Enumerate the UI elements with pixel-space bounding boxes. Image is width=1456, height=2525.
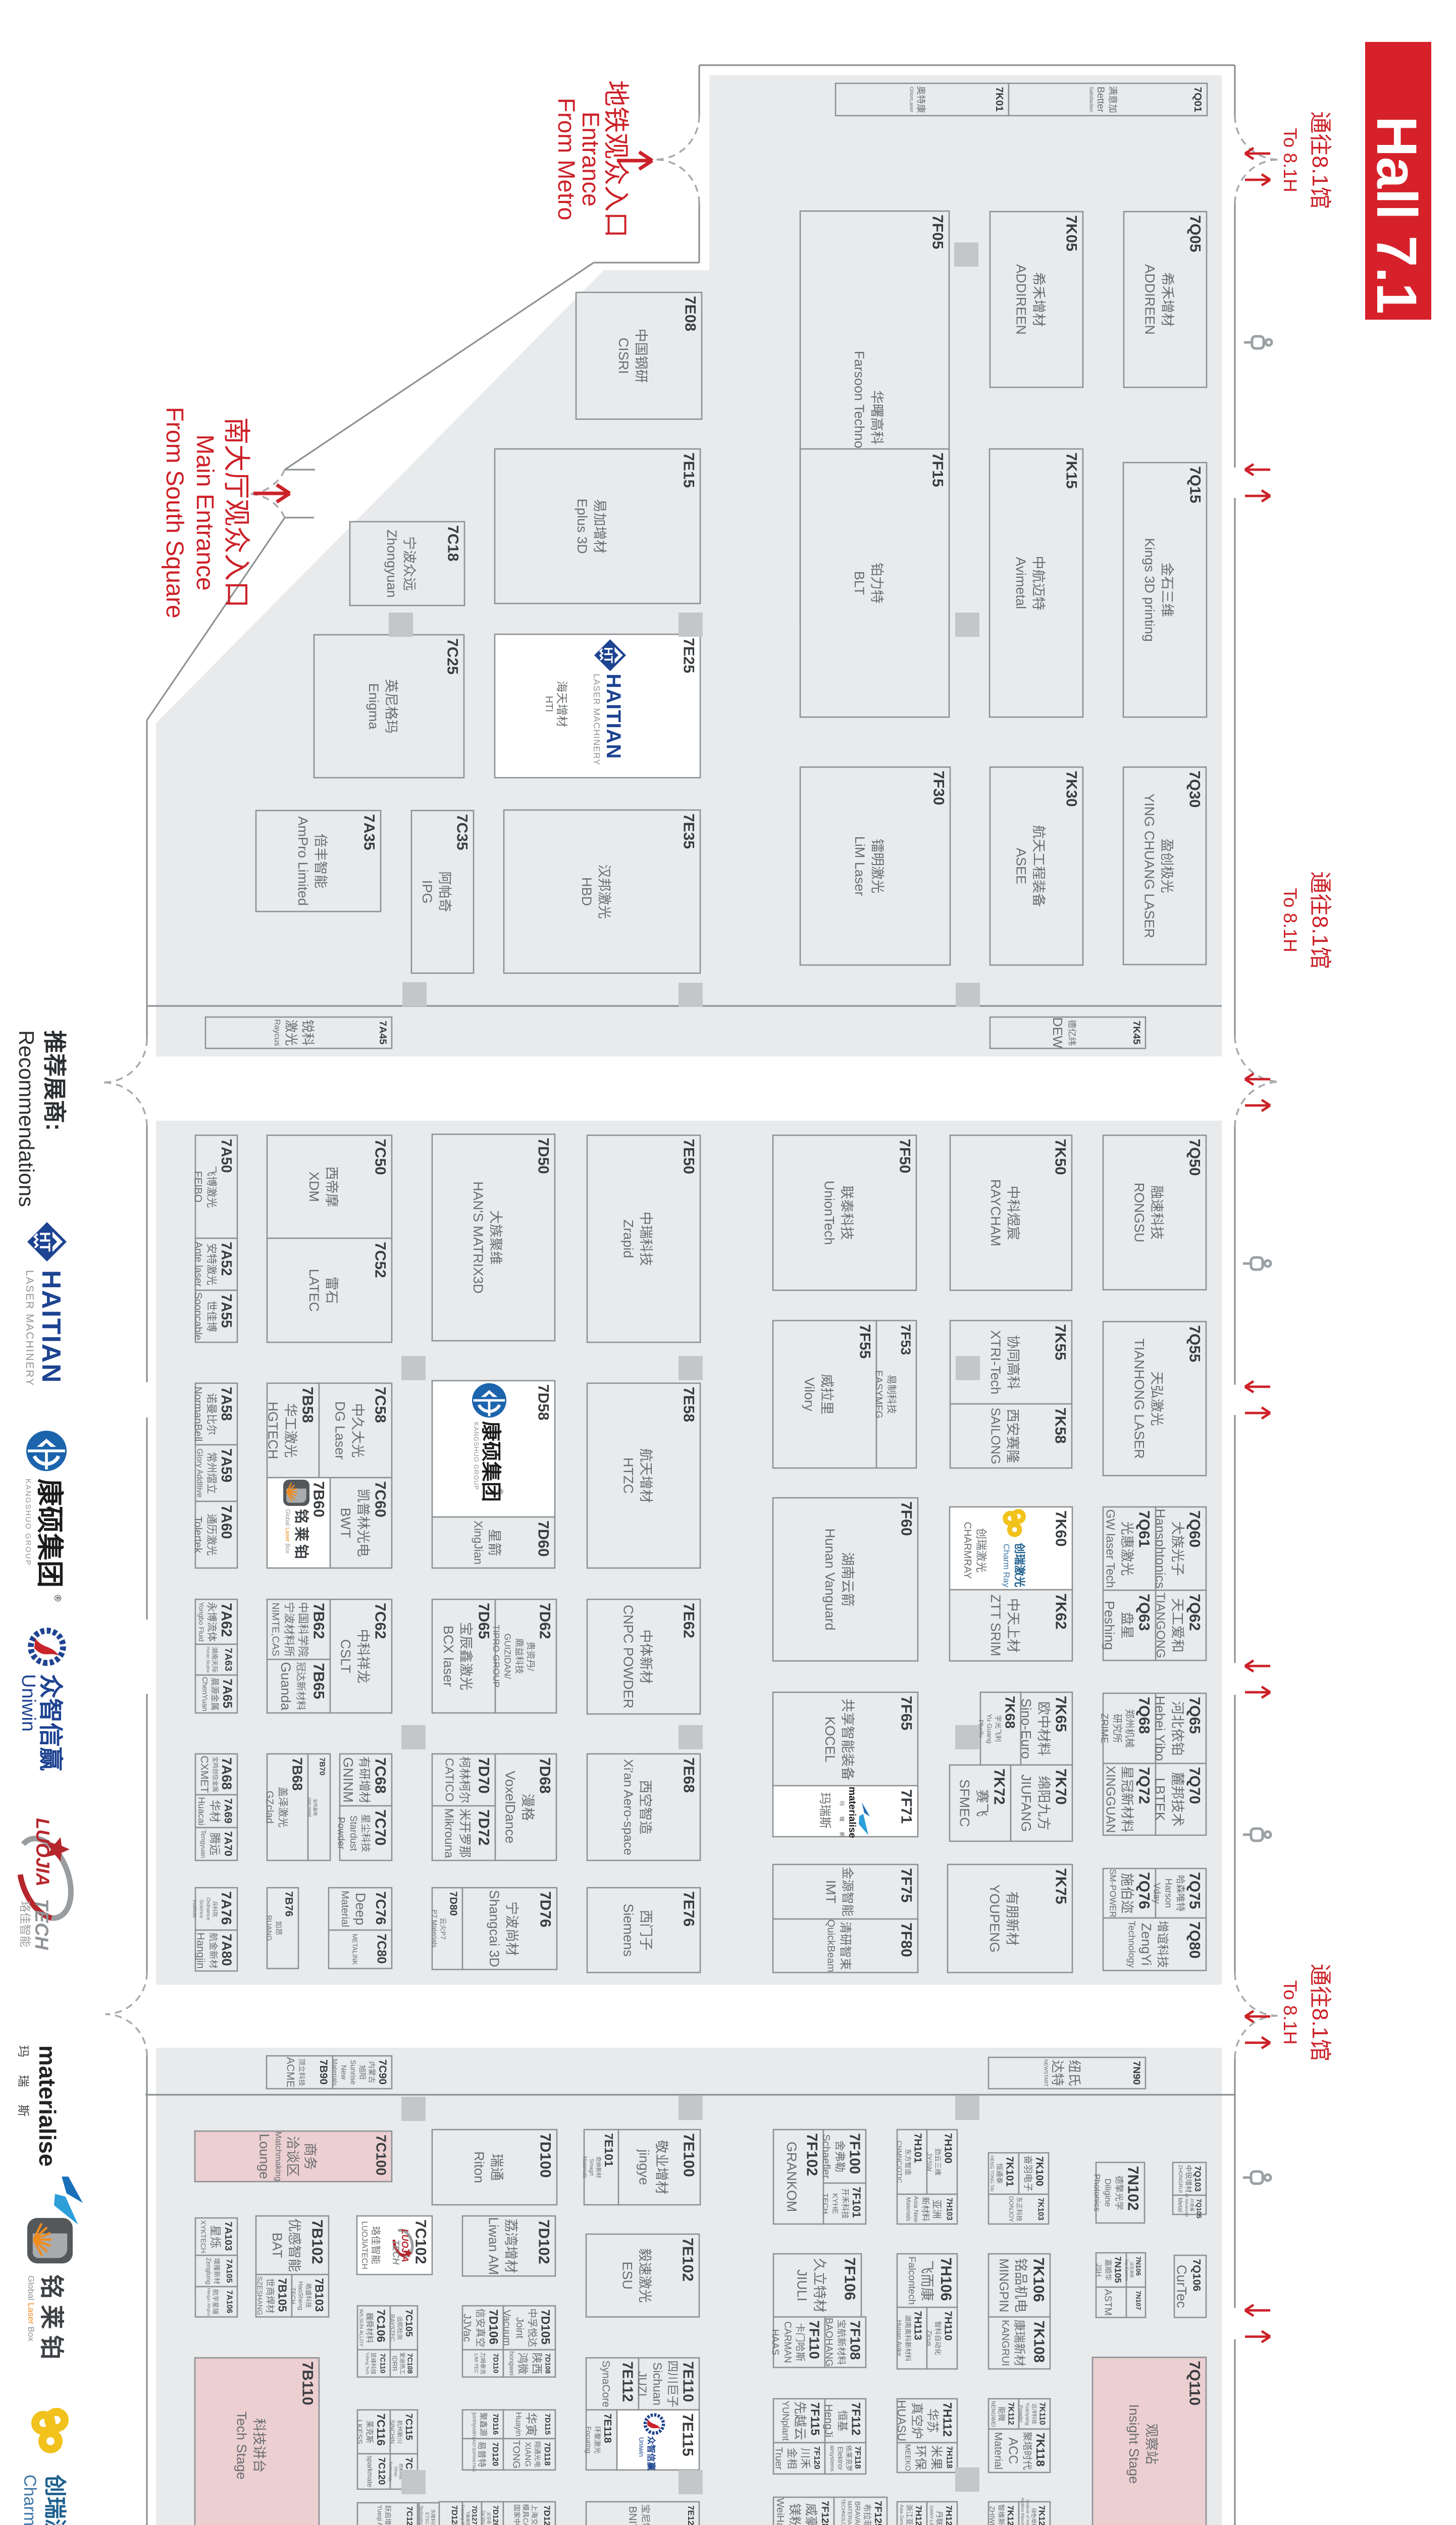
svg-text:Additive Manufacturing: Additive Manufacturing bbox=[1020, 2498, 1025, 2525]
svg-text:Institute of Intelligent: Institute of Intelligent bbox=[1025, 2500, 1030, 2525]
svg-text:易普特: 易普特 bbox=[477, 2441, 487, 2467]
svg-text:7D62: 7D62 bbox=[536, 1603, 553, 1639]
svg-text:OrionLaser: OrionLaser bbox=[909, 87, 914, 113]
svg-text:To 8.1H: To 8.1H bbox=[1280, 1980, 1301, 2045]
svg-text:Eplus 3D: Eplus 3D bbox=[575, 498, 590, 554]
svg-text:爱迪热工: 爱迪热工 bbox=[399, 2352, 405, 2375]
svg-text:Yuanyang: Yuanyang bbox=[1024, 2402, 1030, 2426]
svg-text:Hunan Aoke: Hunan Aoke bbox=[896, 2320, 903, 2356]
svg-text:Science: Science bbox=[198, 1899, 204, 1918]
svg-text:Siemens: Siemens bbox=[620, 1903, 636, 1956]
svg-text:JIULI: JIULI bbox=[794, 2269, 809, 2301]
svg-text:®: ® bbox=[496, 1489, 504, 1494]
svg-text:星冠新材料: 星冠新材料 bbox=[1120, 1766, 1135, 1833]
svg-text:湖南天际: 湖南天际 bbox=[211, 1647, 219, 1673]
svg-text:西空智造: 西空智造 bbox=[638, 1780, 653, 1835]
svg-text:JIUFANG: JIUFANG bbox=[1018, 1774, 1033, 1832]
svg-text:亚洲: 亚洲 bbox=[931, 2199, 942, 2218]
svg-text:7B102: 7B102 bbox=[308, 2219, 325, 2264]
svg-text:KANGSHUO GROUP: KANGSHUO GROUP bbox=[473, 1422, 480, 1490]
svg-text:Photonics: Photonics bbox=[1092, 2174, 1102, 2212]
svg-text:7H126: 7H126 bbox=[914, 2505, 923, 2525]
svg-text:HAITIAN: HAITIAN bbox=[602, 674, 625, 759]
svg-text:JX金属: JX金属 bbox=[1190, 2198, 1195, 2212]
svg-text:7D120: 7D120 bbox=[491, 2442, 500, 2466]
svg-text:7A69: 7A69 bbox=[222, 1798, 234, 1824]
svg-text:HGTECH: HGTECH bbox=[265, 1402, 280, 1459]
svg-text:hongwei: hongwei bbox=[508, 2351, 515, 2376]
svg-text:7A103: 7A103 bbox=[223, 2221, 234, 2251]
svg-text:7C58: 7C58 bbox=[372, 1387, 388, 1423]
svg-text:YING CHUANG LASER: YING CHUANG LASER bbox=[1141, 793, 1157, 938]
svg-text:皓盛科技: 皓盛科技 bbox=[305, 2284, 313, 2308]
svg-text:7F128: 7F128 bbox=[819, 2501, 830, 2525]
svg-text:Vacuum: Vacuum bbox=[501, 2310, 512, 2346]
svg-text:哈森唯特: 哈森唯特 bbox=[1175, 1875, 1185, 1912]
svg-text:ADDIREEN: ADDIREEN bbox=[1142, 264, 1157, 335]
svg-text:ASEE: ASEE bbox=[1013, 848, 1028, 884]
svg-text:7A63: 7A63 bbox=[223, 1648, 234, 1672]
svg-text:通历激光: 通历激光 bbox=[205, 1513, 217, 1555]
svg-text:舍弗勒: 舍弗勒 bbox=[834, 2140, 846, 2172]
svg-text:7D70: 7D70 bbox=[475, 1757, 492, 1794]
svg-text:荔湾增材: 荔湾增材 bbox=[503, 2219, 518, 2274]
svg-text:TIPRO GROUP: TIPRO GROUP bbox=[491, 1625, 501, 1687]
svg-text:Elektror: Elektror bbox=[837, 2447, 844, 2470]
svg-text:7D108: 7D108 bbox=[544, 2353, 552, 2374]
svg-text:Entrance: Entrance bbox=[578, 112, 604, 207]
svg-text:7K75: 7K75 bbox=[1052, 1868, 1069, 1904]
svg-text:Recommendations: Recommendations bbox=[15, 1030, 38, 1207]
svg-text:CHARMRAY: CHARMRAY bbox=[962, 1522, 973, 1579]
svg-text:XTRI-Tech: XTRI-Tech bbox=[988, 1330, 1003, 1395]
svg-text:7F53: 7F53 bbox=[898, 1324, 913, 1355]
svg-text:欧中材料: 欧中材料 bbox=[1036, 1701, 1051, 1756]
svg-text:7A105: 7A105 bbox=[225, 2259, 234, 2283]
svg-text:P7 Materials: P7 Materials bbox=[431, 1909, 438, 1947]
svg-text:Vday: Vday bbox=[1152, 1883, 1162, 1904]
svg-text:LUOJIATECH: LUOJIATECH bbox=[360, 2221, 369, 2269]
svg-text:腾远: 腾远 bbox=[209, 1833, 221, 1855]
svg-text:7C50: 7C50 bbox=[372, 1139, 388, 1175]
svg-text:聚鑫源: 聚鑫源 bbox=[479, 2412, 488, 2436]
svg-text:LKESS: LKESS bbox=[355, 2419, 364, 2444]
svg-text:珞佳智能: 珞佳智能 bbox=[370, 2226, 381, 2264]
svg-text:Huacai: Huacai bbox=[196, 1797, 206, 1825]
svg-text:KANGSHUO GROUP: KANGSHUO GROUP bbox=[24, 1479, 32, 1566]
svg-text:7H101: 7H101 bbox=[912, 2133, 923, 2163]
svg-text:漫格: 漫格 bbox=[520, 1794, 535, 1821]
svg-text:7B90: 7B90 bbox=[318, 2059, 329, 2085]
svg-text:ESU: ESU bbox=[619, 2261, 635, 2290]
svg-text:Sinagrt: Sinagrt bbox=[589, 2159, 595, 2176]
svg-text:7E50: 7E50 bbox=[680, 1139, 697, 1174]
svg-text:星尘科技: 星尘科技 bbox=[360, 1814, 371, 1852]
svg-text:7C108: 7C108 bbox=[406, 2353, 414, 2374]
svg-text:华工激光: 华工激光 bbox=[283, 1403, 298, 1458]
svg-text:7Q110: 7Q110 bbox=[1186, 2361, 1203, 2405]
svg-text:JUZI: JUZI bbox=[635, 2371, 648, 2396]
svg-text:旭阳: 旭阳 bbox=[358, 2065, 367, 2080]
svg-text:新材料: 新材料 bbox=[920, 2197, 929, 2221]
svg-text:7Q80: 7Q80 bbox=[1186, 1922, 1203, 1958]
svg-text:兵科院: 兵科院 bbox=[212, 1901, 219, 1917]
svg-text:易加增材: 易加增材 bbox=[592, 499, 607, 553]
svg-text:Technology: Technology bbox=[1127, 1921, 1137, 1968]
svg-text:To 8.1H: To 8.1H bbox=[1280, 128, 1301, 192]
svg-text:7Q55: 7Q55 bbox=[1186, 1325, 1203, 1362]
svg-text:Focuring: Focuring bbox=[585, 2427, 593, 2454]
svg-text:Shangcai 3D: Shangcai 3D bbox=[487, 1890, 502, 1967]
svg-text:JYSW: JYSW bbox=[925, 2152, 933, 2171]
svg-text:airsystems: airsystems bbox=[829, 2445, 835, 2472]
svg-text:7K106: 7K106 bbox=[1030, 2257, 1047, 2302]
svg-text:7E112: 7E112 bbox=[619, 2361, 636, 2402]
svg-text:Technology: Technology bbox=[388, 2461, 393, 2482]
svg-text:7C90: 7C90 bbox=[377, 2059, 388, 2085]
svg-text:NENGWEI: NENGWEI bbox=[990, 2401, 996, 2427]
svg-text:阿帕奇: 阿帕奇 bbox=[437, 872, 452, 913]
svg-text:玛瑞斯: 玛瑞斯 bbox=[818, 1792, 831, 1829]
svg-text:HAN'S MATRIX3D: HAN'S MATRIX3D bbox=[471, 1181, 486, 1293]
svg-text:创瑞激光: 创瑞激光 bbox=[975, 1528, 987, 1573]
svg-text:7Q63: 7Q63 bbox=[1135, 1594, 1152, 1631]
svg-text:开禾科技: 开禾科技 bbox=[841, 2188, 849, 2219]
svg-text:优感智能: 优感智能 bbox=[287, 2218, 302, 2272]
svg-text:7F30: 7F30 bbox=[930, 771, 947, 805]
svg-text:中锐增材: 中锐增材 bbox=[1184, 2165, 1192, 2193]
svg-text:宝尼特: 宝尼特 bbox=[641, 2504, 651, 2525]
svg-text:Main Entrance: Main Entrance bbox=[191, 434, 218, 591]
svg-text:7K58: 7K58 bbox=[1052, 1407, 1068, 1444]
svg-text:7A59: 7A59 bbox=[219, 1448, 235, 1482]
svg-text:国家中心: 国家中心 bbox=[513, 2504, 521, 2525]
svg-text:materialise: materialise bbox=[34, 2045, 61, 2166]
svg-text:冠达新材料: 冠达新材料 bbox=[295, 1662, 306, 1710]
svg-text:镁粉: 镁粉 bbox=[788, 2503, 802, 2525]
svg-text:AmPro Limited: AmPro Limited bbox=[295, 816, 310, 905]
svg-text:7B70: 7B70 bbox=[318, 1757, 327, 1776]
svg-text:众智信赢: 众智信赢 bbox=[646, 2436, 656, 2470]
svg-text:云火P7: 云火P7 bbox=[439, 1917, 447, 1940]
svg-text:德擎光学: 德擎光学 bbox=[1114, 2176, 1124, 2210]
svg-text:通往8.1馆: 通往8.1馆 bbox=[1308, 871, 1332, 969]
svg-text:7A50: 7A50 bbox=[219, 1139, 235, 1173]
svg-text:Feixiang Metal: Feixiang Metal bbox=[460, 2505, 465, 2525]
svg-text:7F118: 7F118 bbox=[853, 2446, 862, 2469]
svg-text:7D125: 7D125 bbox=[542, 2505, 552, 2525]
svg-text:7Q15: 7Q15 bbox=[1186, 466, 1203, 503]
svg-text:ZHONGRUI: ZHONGRUI bbox=[1177, 2165, 1183, 2193]
svg-text:JSH: JSH bbox=[1095, 2263, 1103, 2277]
svg-text:7E102: 7E102 bbox=[679, 2238, 696, 2282]
svg-text:Avimetal: Avimetal bbox=[1013, 557, 1028, 609]
svg-text:满意加: 满意加 bbox=[1108, 86, 1118, 113]
svg-text:Tech Stage: Tech Stage bbox=[234, 2411, 249, 2480]
svg-text:LASER MACHINERY: LASER MACHINERY bbox=[24, 1270, 35, 1386]
svg-text:HaoSheng: HaoSheng bbox=[297, 2281, 304, 2310]
svg-text:7K65: 7K65 bbox=[1052, 1696, 1069, 1732]
svg-text:中天上材: 中天上材 bbox=[1005, 1598, 1020, 1653]
svg-text:7K100: 7K100 bbox=[1034, 2156, 1045, 2186]
svg-text:RAYSTEC: RAYSTEC bbox=[389, 2314, 395, 2342]
svg-text:7E35: 7E35 bbox=[680, 814, 697, 849]
svg-text:融速科技: 融速科技 bbox=[1149, 1185, 1164, 1240]
svg-text:SynaCore: SynaCore bbox=[600, 2360, 612, 2407]
svg-text:7D72: 7D72 bbox=[475, 1809, 492, 1846]
svg-text:智科自动化: 智科自动化 bbox=[934, 2321, 942, 2355]
svg-text:中国钢研: 中国钢研 bbox=[634, 329, 649, 383]
svg-text:UnionTech: UnionTech bbox=[821, 1181, 837, 1245]
svg-text:中国科学院: 中国科学院 bbox=[297, 1602, 309, 1657]
svg-text:Yongbo Fluid: Yongbo Fluid bbox=[197, 1602, 205, 1641]
svg-text:陕西: 陕西 bbox=[531, 2352, 543, 2374]
svg-text:BAOHANG: BAOHANG bbox=[823, 2317, 835, 2366]
svg-text:XingJian: XingJian bbox=[472, 1521, 485, 1564]
svg-text:7D106: 7D106 bbox=[487, 2309, 500, 2344]
svg-text:西安赛隆: 西安赛隆 bbox=[1005, 1409, 1020, 1463]
svg-text:7D110: 7D110 bbox=[492, 2353, 500, 2373]
svg-text:ASTM: ASTM bbox=[1103, 2289, 1113, 2316]
svg-text:GRANKOM: GRANKOM bbox=[784, 2142, 799, 2212]
svg-text:Harson: Harson bbox=[1164, 1879, 1174, 1908]
svg-text:HT: HT bbox=[601, 647, 615, 664]
svg-text:倍丰智能: 倍丰智能 bbox=[313, 834, 328, 888]
svg-text:HBD: HBD bbox=[579, 877, 594, 906]
svg-text:NIMTE,CAS: NIMTE,CAS bbox=[270, 1602, 281, 1656]
svg-text:7N107: 7N107 bbox=[1134, 2291, 1142, 2310]
svg-text:7E110: 7E110 bbox=[680, 2361, 696, 2402]
svg-text:7A70: 7A70 bbox=[222, 1831, 234, 1856]
svg-text:东正科技: 东正科技 bbox=[1016, 2197, 1023, 2221]
svg-text:通往8.1馆: 通往8.1馆 bbox=[1308, 1963, 1332, 2061]
svg-text:7F71: 7F71 bbox=[898, 1789, 914, 1824]
svg-text:常州熠立: 常州熠立 bbox=[205, 1452, 217, 1494]
svg-text:QuickBeam: QuickBeam bbox=[825, 1920, 836, 1973]
svg-text:郑州机械: 郑州机械 bbox=[1124, 1709, 1135, 1748]
svg-text:力姆泰克: 力姆泰克 bbox=[480, 2352, 487, 2375]
svg-text:Mikrouna: Mikrouna bbox=[442, 1808, 456, 1858]
svg-text:7Q05: 7Q05 bbox=[1186, 215, 1203, 252]
svg-text:远洋科技: 远洋科技 bbox=[1031, 2403, 1037, 2424]
svg-text:7B110: 7B110 bbox=[299, 2361, 316, 2405]
svg-text:增隆新材: 增隆新材 bbox=[213, 2258, 221, 2284]
svg-text:7A58: 7A58 bbox=[219, 1387, 235, 1421]
svg-text:盘星: 盘星 bbox=[1119, 1612, 1134, 1639]
svg-text:7Q68: 7Q68 bbox=[1135, 1697, 1152, 1734]
svg-text:7E101: 7E101 bbox=[602, 2133, 615, 2167]
svg-text:华寅: 华寅 bbox=[525, 2412, 538, 2436]
svg-text:7D128: 7D128 bbox=[450, 2505, 458, 2525]
svg-text:KYHE: KYHE bbox=[831, 2193, 840, 2214]
svg-text:奋羽电子: 奋羽电子 bbox=[1023, 2155, 1033, 2192]
svg-text:Kings 3D printing: Kings 3D printing bbox=[1142, 538, 1157, 642]
svg-text:嘉顺华: 嘉顺华 bbox=[1104, 2259, 1112, 2281]
svg-text:昱峰科技: 昱峰科技 bbox=[370, 2352, 377, 2375]
svg-text:7K101: 7K101 bbox=[1004, 2156, 1015, 2187]
svg-text:飞博激光: 飞博激光 bbox=[205, 1166, 217, 1207]
svg-text:推荐展商:: 推荐展商: bbox=[41, 1030, 68, 1131]
svg-text:LATEC: LATEC bbox=[306, 1269, 322, 1311]
svg-text:莱克斯: 莱克斯 bbox=[365, 2420, 374, 2443]
svg-text:宝鸡创信金属: 宝鸡创信金属 bbox=[212, 1756, 219, 1792]
svg-text:7A45: 7A45 bbox=[377, 1021, 388, 1044]
svg-text:顶立科技: 顶立科技 bbox=[298, 2058, 305, 2086]
svg-text:宝航新材料: 宝航新材料 bbox=[837, 2319, 847, 2365]
svg-text:Truer: Truer bbox=[773, 2447, 784, 2470]
svg-text:DONJOY: DONJOY bbox=[1008, 2196, 1015, 2223]
svg-text:7C52: 7C52 bbox=[372, 1242, 388, 1278]
svg-text:7D58: 7D58 bbox=[535, 1384, 551, 1421]
svg-text:Tolertek: Tolertek bbox=[192, 1517, 203, 1553]
svg-text:永博流体: 永博流体 bbox=[206, 1602, 217, 1642]
svg-text:共享智能装备: 共享智能装备 bbox=[840, 1699, 855, 1781]
svg-text:7F100: 7F100 bbox=[847, 2133, 863, 2174]
svg-text:Hunan Skyline: Hunan Skyline bbox=[205, 1647, 210, 1673]
svg-text:7H100: 7H100 bbox=[942, 2133, 953, 2163]
svg-text:7F125: 7F125 bbox=[872, 2501, 883, 2525]
svg-text:Liwan AM: Liwan AM bbox=[486, 2217, 501, 2275]
svg-text:7E118: 7E118 bbox=[602, 2413, 613, 2443]
svg-text:米果: 米果 bbox=[929, 2445, 944, 2470]
svg-text:Enigma: Enigma bbox=[366, 683, 381, 730]
svg-text:航宇星瑞: 航宇星瑞 bbox=[212, 2289, 220, 2314]
svg-text:地铁观众入口: 地铁观众入口 bbox=[601, 80, 630, 238]
svg-text:7Q30: 7Q30 bbox=[1186, 771, 1203, 807]
svg-text:Institute: Institute bbox=[192, 1900, 197, 1918]
svg-text:金石三维: 金石三维 bbox=[1160, 563, 1175, 617]
svg-text:威拉里: 威拉里 bbox=[819, 1374, 835, 1415]
svg-text:7Q01: 7Q01 bbox=[1192, 87, 1204, 112]
svg-text:东隆科技: 东隆科技 bbox=[430, 2509, 436, 2525]
svg-text:7B65: 7B65 bbox=[310, 1663, 327, 1699]
svg-text:7A62: 7A62 bbox=[219, 1603, 235, 1637]
svg-text:7C62: 7C62 bbox=[372, 1603, 388, 1639]
svg-text:杭州新川: 杭州新川 bbox=[396, 2420, 403, 2443]
svg-text:GZclad: GZclad bbox=[264, 1791, 275, 1824]
svg-text:世佳博: 世佳博 bbox=[205, 1300, 217, 1332]
svg-text:HT: HT bbox=[36, 1232, 53, 1252]
svg-text:宁波尚材: 宁波尚材 bbox=[504, 1901, 519, 1956]
svg-text:7B105: 7B105 bbox=[276, 2278, 289, 2312]
svg-text:7B60: 7B60 bbox=[310, 1481, 327, 1518]
svg-text:华苏: 华苏 bbox=[925, 2408, 939, 2433]
svg-text:To 8.1H: To 8.1H bbox=[1280, 888, 1301, 952]
svg-text:华曙高科: 华曙高科 bbox=[869, 390, 885, 445]
svg-text:ACC: ACC bbox=[1006, 2438, 1020, 2464]
svg-text:7K112: 7K112 bbox=[1006, 2402, 1015, 2425]
svg-text:TECH: TECH bbox=[31, 1899, 52, 1950]
svg-text:7E62: 7E62 bbox=[680, 1603, 697, 1638]
svg-text:天工爱和: 天工爱和 bbox=[1170, 1598, 1185, 1653]
svg-text:sparkmate: sparkmate bbox=[366, 2456, 374, 2488]
svg-text:Technologies: Technologies bbox=[419, 2505, 424, 2525]
svg-text:RONGSU: RONGSU bbox=[1131, 1183, 1147, 1243]
svg-text:7C100: 7C100 bbox=[373, 2135, 389, 2176]
svg-text:7C68: 7C68 bbox=[372, 1757, 388, 1794]
svg-text:世商焊材: 世商焊材 bbox=[265, 2278, 275, 2313]
svg-text:7A106: 7A106 bbox=[225, 2290, 233, 2313]
svg-text:先越云: 先越云 bbox=[793, 2401, 807, 2440]
svg-text:中体新材: 中体新材 bbox=[638, 1630, 653, 1684]
svg-text:Sooncable: Sooncable bbox=[192, 1292, 203, 1340]
svg-text:ZRIME: ZRIME bbox=[1099, 1713, 1110, 1744]
svg-text:Diligine: Diligine bbox=[1103, 2179, 1113, 2207]
svg-text:协同高科: 协同高科 bbox=[1006, 1335, 1021, 1390]
svg-text:鸿微: 鸿微 bbox=[516, 2352, 529, 2374]
svg-text:WeiHao: WeiHao bbox=[774, 2498, 786, 2525]
svg-text:飞象精铝: 飞象精铝 bbox=[465, 2510, 471, 2525]
svg-text:宁波材料所: 宁波材料所 bbox=[283, 1602, 295, 1657]
svg-text:劲云三维: 劲云三维 bbox=[934, 2148, 942, 2176]
svg-text:施伯迩: 施伯迩 bbox=[1119, 1873, 1134, 1914]
svg-text:New: New bbox=[339, 2065, 347, 2080]
svg-text:KANGRUI: KANGRUI bbox=[1000, 2320, 1011, 2366]
svg-text:航天增材: 航天增材 bbox=[638, 1448, 653, 1503]
svg-text:Better: Better bbox=[1095, 86, 1106, 113]
svg-text:Uniwin: Uniwin bbox=[638, 2437, 645, 2457]
svg-text:SZESHANG: SZESHANG bbox=[256, 2276, 264, 2315]
svg-text:BCX laser: BCX laser bbox=[441, 1626, 456, 1687]
svg-text:CNMNC/OTIC: CNMNC/OTIC bbox=[896, 2141, 903, 2184]
svg-text:Material: Material bbox=[992, 2432, 1004, 2469]
svg-text:能微: 能微 bbox=[997, 2406, 1006, 2421]
svg-text:7E25: 7E25 bbox=[680, 638, 697, 673]
svg-text:7K108: 7K108 bbox=[1031, 2320, 1047, 2363]
svg-text:Zicus: Zicus bbox=[925, 2330, 933, 2347]
svg-text:KOCEL: KOCEL bbox=[822, 1716, 838, 1763]
svg-text:中孚悦达: 中孚悦达 bbox=[527, 2308, 538, 2347]
svg-text:7E100: 7E100 bbox=[680, 2133, 697, 2177]
svg-text:7N105: 7N105 bbox=[1113, 2256, 1123, 2283]
svg-text:XDM: XDM bbox=[306, 1172, 322, 1202]
svg-text:Materials: Materials bbox=[582, 2156, 588, 2178]
svg-text:Uniwin: Uniwin bbox=[18, 1674, 39, 1732]
svg-text:GNINM: GNINM bbox=[340, 1757, 355, 1803]
svg-text:CNPC POWDER: CNPC POWDER bbox=[620, 1605, 636, 1709]
svg-text:锐科: 锐科 bbox=[300, 1020, 316, 1046]
svg-text:7K60: 7K60 bbox=[1052, 1510, 1069, 1547]
svg-text:英尼格玛: 英尼格玛 bbox=[384, 679, 399, 734]
svg-text:HTI: HTI bbox=[543, 696, 554, 712]
svg-text:华材: 华材 bbox=[209, 1800, 221, 1823]
svg-text:7K30: 7K30 bbox=[1063, 771, 1079, 807]
svg-text:金相: 金相 bbox=[786, 2448, 797, 2469]
svg-text:IMT: IMT bbox=[823, 1880, 839, 1904]
svg-text:7D126: 7D126 bbox=[491, 2505, 499, 2525]
svg-text:诺曼比尔: 诺曼比尔 bbox=[205, 1393, 217, 1435]
svg-text:7F60: 7F60 bbox=[898, 1501, 914, 1536]
svg-text:HAAS: HAAS bbox=[770, 2329, 781, 2355]
svg-text:7D116: 7D116 bbox=[491, 2413, 499, 2435]
svg-text:TONG: TONG bbox=[510, 2440, 522, 2469]
svg-text:大族光子: 大族光子 bbox=[1170, 1522, 1185, 1576]
svg-text:7C120: 7C120 bbox=[377, 2457, 387, 2485]
svg-text:7N102: 7N102 bbox=[1124, 2166, 1141, 2210]
svg-text:Sunrise: Sunrise bbox=[349, 2060, 357, 2085]
svg-text:Hangyu Xingrui: Hangyu Xingrui bbox=[206, 2288, 211, 2316]
svg-text:BAT: BAT bbox=[270, 2233, 285, 2258]
svg-text:巍舜材料: 巍舜材料 bbox=[365, 2312, 374, 2343]
svg-text:7E115: 7E115 bbox=[679, 2413, 696, 2456]
svg-text:海天增材: 海天增材 bbox=[555, 681, 568, 727]
svg-text:materialise: materialise bbox=[847, 1787, 858, 1838]
svg-text:布拉菲: 布拉菲 bbox=[862, 2504, 871, 2525]
svg-text:玛 瑞 斯: 玛 瑞 斯 bbox=[839, 1801, 845, 1842]
svg-text:7C80: 7C80 bbox=[375, 1934, 389, 1964]
svg-text:Zenglong: Zenglong bbox=[205, 2257, 213, 2284]
svg-text:Asia General: Asia General bbox=[899, 2504, 905, 2525]
